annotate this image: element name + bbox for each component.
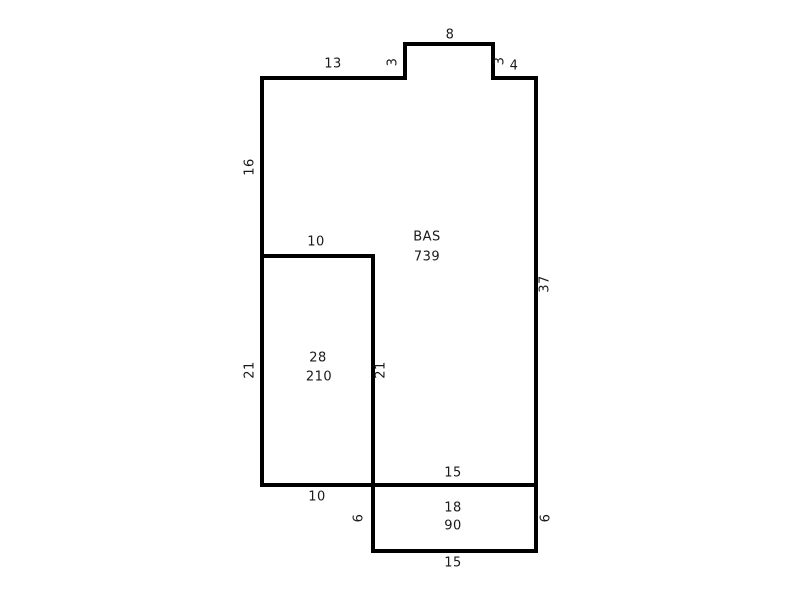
dim-label-bump-top: 8 [446,29,455,42]
dim-label-left-lower: 21 [244,361,257,379]
area-label: BAS [413,231,441,244]
left-room-sqft: 210 [306,371,332,384]
dim-label-ext-right: 6 [540,514,553,523]
dim-label-main-bottom-left: 10 [308,491,326,504]
dim-label-left-room-top: 10 [307,236,325,249]
left-room-dim: 28 [309,352,327,365]
dim-label-ext-left: 6 [353,514,366,523]
dim-label-bump-left: 3 [387,58,400,67]
floorplan-sketch [0,0,800,600]
dim-label-top-left: 13 [324,58,342,71]
extension-sqft: 90 [444,520,462,533]
main-outline [262,44,536,485]
dim-label-ext-bottom: 15 [444,557,462,570]
dim-label-top-right: 4 [510,60,519,73]
area-sqft: 739 [414,251,440,264]
dim-label-left-upper: 16 [244,158,257,176]
dim-label-left-room-right: 21 [375,361,388,379]
dim-label-right-wall: 37 [539,275,552,293]
dim-label-bump-right: 3 [494,57,507,66]
dim-label-main-bottom-right: 15 [444,467,462,480]
extension-dim: 18 [444,502,462,515]
sketch-canvas: 8 13 3 3 4 16 21 37 BAS 739 10 21 28 210… [0,0,800,600]
